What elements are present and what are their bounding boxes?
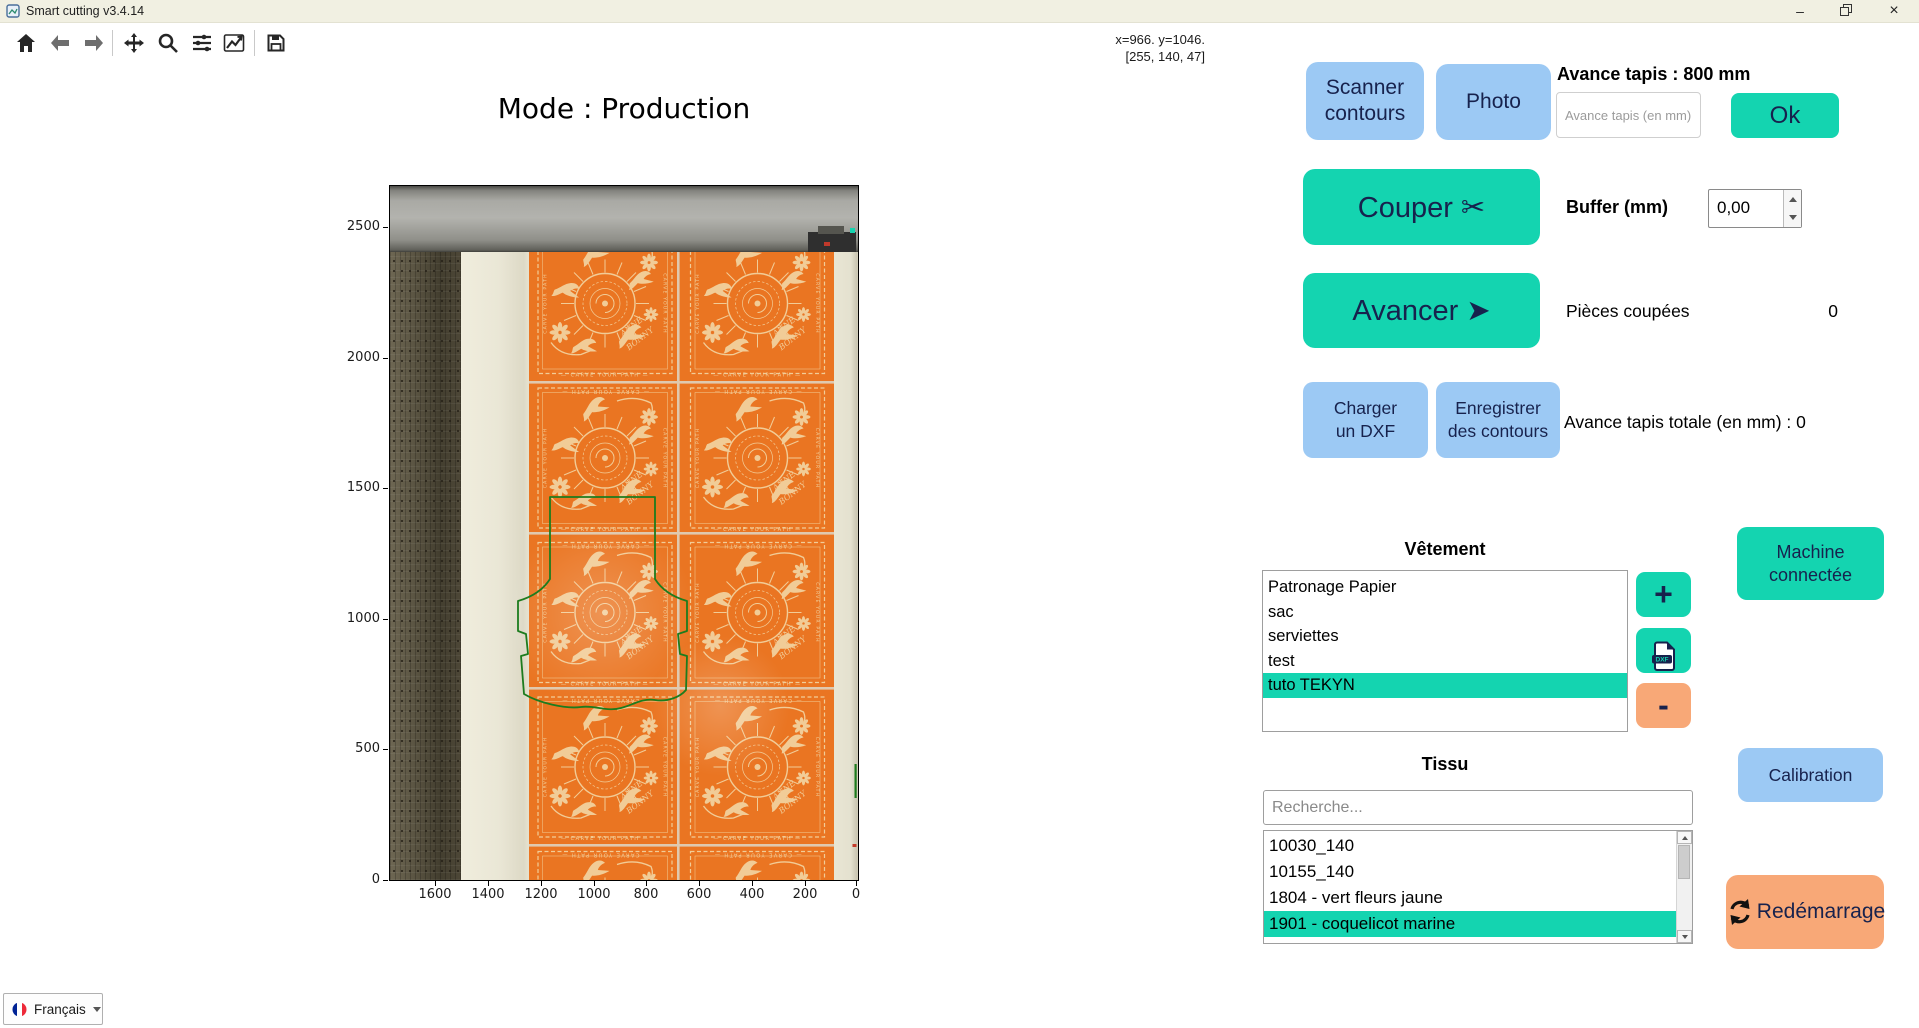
up-arrow-icon [1682,836,1688,840]
customize-icon[interactable] [220,29,248,57]
tissu-title: Tissu [1262,754,1628,775]
app-icon [6,4,20,23]
x-tick-label: 1200 [516,887,566,902]
machine-status-button[interactable]: Machine connectée [1737,527,1884,600]
close-icon: × [1889,2,1898,20]
refresh-icon [1725,897,1755,927]
vetement-title: Vêtement [1262,539,1628,560]
scrollbar[interactable] [1676,831,1692,943]
save-icon[interactable] [262,29,290,57]
cutter-teal-part [850,228,855,233]
language-label: Français [34,1002,86,1017]
redemarrage-label: Redémarrage [1757,900,1885,924]
y-tick-mark [383,227,388,228]
spinner-down-button[interactable] [1784,209,1801,228]
titlebar: Smart cutting v3.4.14 – × [0,0,1919,23]
enregistrer-contours-button[interactable]: Enregistrer des contours [1436,382,1560,458]
cutter-head-top [818,226,844,234]
buffer-value: 0,00 [1717,198,1750,218]
pan-icon[interactable] [120,29,148,57]
language-selector[interactable]: Français [3,993,103,1025]
restore-button[interactable] [1828,0,1864,22]
down-arrow-icon [1789,215,1797,220]
buffer-spinner[interactable]: 0,00 [1708,189,1802,228]
y-tick-label: 2000 [334,350,380,365]
charger-dxf-button[interactable]: Charger un DXF [1303,382,1428,458]
window-title: Smart cutting v3.4.14 [26,4,144,18]
scrollbar-down-button[interactable] [1677,930,1692,943]
export-dxf-button[interactable]: DXF [1636,628,1691,673]
x-tick-mark [805,881,806,886]
minimize-button[interactable]: – [1782,0,1818,22]
svg-text:DXF: DXF [1655,657,1668,664]
cursor-readout: x=966. y=1046. [255, 140, 47] [1000,31,1205,65]
pieces-coupees-value: 0 [1750,301,1838,322]
toolbar-separator [112,30,113,56]
x-tick-mark [752,881,753,886]
toolbar-separator [254,30,255,56]
photo-button[interactable]: Photo [1436,64,1551,140]
close-button[interactable]: × [1876,0,1912,22]
tissu-search-input[interactable] [1263,790,1693,825]
list-item[interactable]: 1901 - coquelicot marine [1264,911,1676,937]
y-tick-label: 1000 [334,611,380,626]
list-item[interactable]: sac [1263,600,1627,625]
y-tick-mark [383,880,388,881]
y-tick-mark [383,619,388,620]
x-tick-label: 1600 [410,887,460,902]
x-tick-mark [488,881,489,886]
x-tick-label: 200 [780,887,830,902]
dxf-file-icon: DXF [1651,626,1677,675]
x-tick-mark [541,881,542,886]
x-tick-mark [699,881,700,886]
fabric-and-contour: ANNE BONNY — CARVE YOUR PATH — — CARVE Y… [390,186,858,880]
y-tick-label: 1500 [334,480,380,495]
list-item[interactable]: serviettes [1263,624,1627,649]
spinner-arrows [1783,190,1801,227]
scrollbar-up-button[interactable] [1677,831,1692,844]
home-icon[interactable] [12,29,40,57]
list-item[interactable]: 10030_140 [1264,833,1676,859]
list-item[interactable]: Patronage Papier [1263,575,1627,600]
x-tick-mark [435,881,436,886]
avance-tapis-input[interactable] [1556,92,1701,138]
subplots-icon[interactable] [188,29,216,57]
cursor-coords: x=966. y=1046. [1000,31,1205,48]
avance-totale-label: Avance tapis totale (en mm) : 0 [1564,412,1849,433]
x-tick-mark [594,881,595,886]
redemarrage-button[interactable]: Redémarrage [1726,875,1884,949]
plot-axes[interactable]: ANNE BONNY — CARVE YOUR PATH — — CARVE Y… [389,185,859,881]
restore-icon [1840,3,1852,20]
x-tick-label: 1400 [463,887,513,902]
back-icon[interactable] [46,29,74,57]
x-tick-label: 0 [831,887,881,902]
plot-title: Mode : Production [389,92,859,125]
zoom-icon[interactable] [154,29,182,57]
pieces-coupees-label: Pièces coupées [1566,301,1690,322]
avancer-button[interactable]: Avancer ➤ [1303,273,1540,348]
cutter-head [808,232,856,252]
minimize-icon: – [1796,3,1804,19]
x-tick-label: 600 [674,887,724,902]
forward-icon[interactable] [80,29,108,57]
x-tick-label: 400 [727,887,777,902]
list-item[interactable]: tuto TEKYN [1263,673,1627,698]
chevron-down-icon [93,1007,101,1012]
add-garment-button[interactable]: + [1636,572,1691,617]
scanner-contours-button[interactable]: Scanner contours [1306,62,1424,140]
cursor-rgb: [255, 140, 47] [1000,48,1205,65]
couper-button[interactable]: Couper ✂ [1303,169,1540,245]
list-item[interactable]: test [1263,649,1627,674]
y-tick-label: 500 [334,741,380,756]
cutter-red-part [824,242,830,246]
vetement-list[interactable]: Patronage Papiersacserviettestesttuto TE… [1262,570,1628,732]
calibration-button[interactable]: Calibration [1738,748,1883,802]
ok-button[interactable]: Ok [1731,93,1839,138]
list-item[interactable]: 10155_140 [1264,859,1676,885]
y-tick-label: 2500 [334,219,380,234]
spinner-up-button[interactable] [1784,190,1801,210]
avance-tapis-label: Avance tapis : 800 mm [1557,64,1750,85]
y-tick-label: 0 [334,872,380,887]
y-tick-mark [383,488,388,489]
down-arrow-icon [1682,935,1688,939]
up-arrow-icon [1789,197,1797,202]
machine-gantry-bar [390,186,858,252]
x-tick-mark [856,881,857,886]
x-tick-label: 1000 [569,887,619,902]
list-item[interactable]: 1904 - Fleurs bleu marine [1264,937,1676,944]
x-tick-mark [646,881,647,886]
app-window: Smart cutting v3.4.14 – × [0,0,1919,1028]
buffer-label: Buffer (mm) [1566,197,1668,218]
y-tick-mark [383,358,388,359]
french-flag-icon [12,1002,27,1017]
y-tick-mark [383,749,388,750]
remove-garment-button[interactable]: - [1636,683,1691,728]
x-tick-label: 800 [621,887,671,902]
camera-photo: ANNE BONNY — CARVE YOUR PATH — — CARVE Y… [390,186,858,880]
scrollbar-thumb[interactable] [1678,845,1690,879]
tissu-list[interactable]: 10030_14010155_1401804 - vert fleurs jau… [1263,830,1693,944]
list-item[interactable]: 1804 - vert fleurs jaune [1264,885,1676,911]
